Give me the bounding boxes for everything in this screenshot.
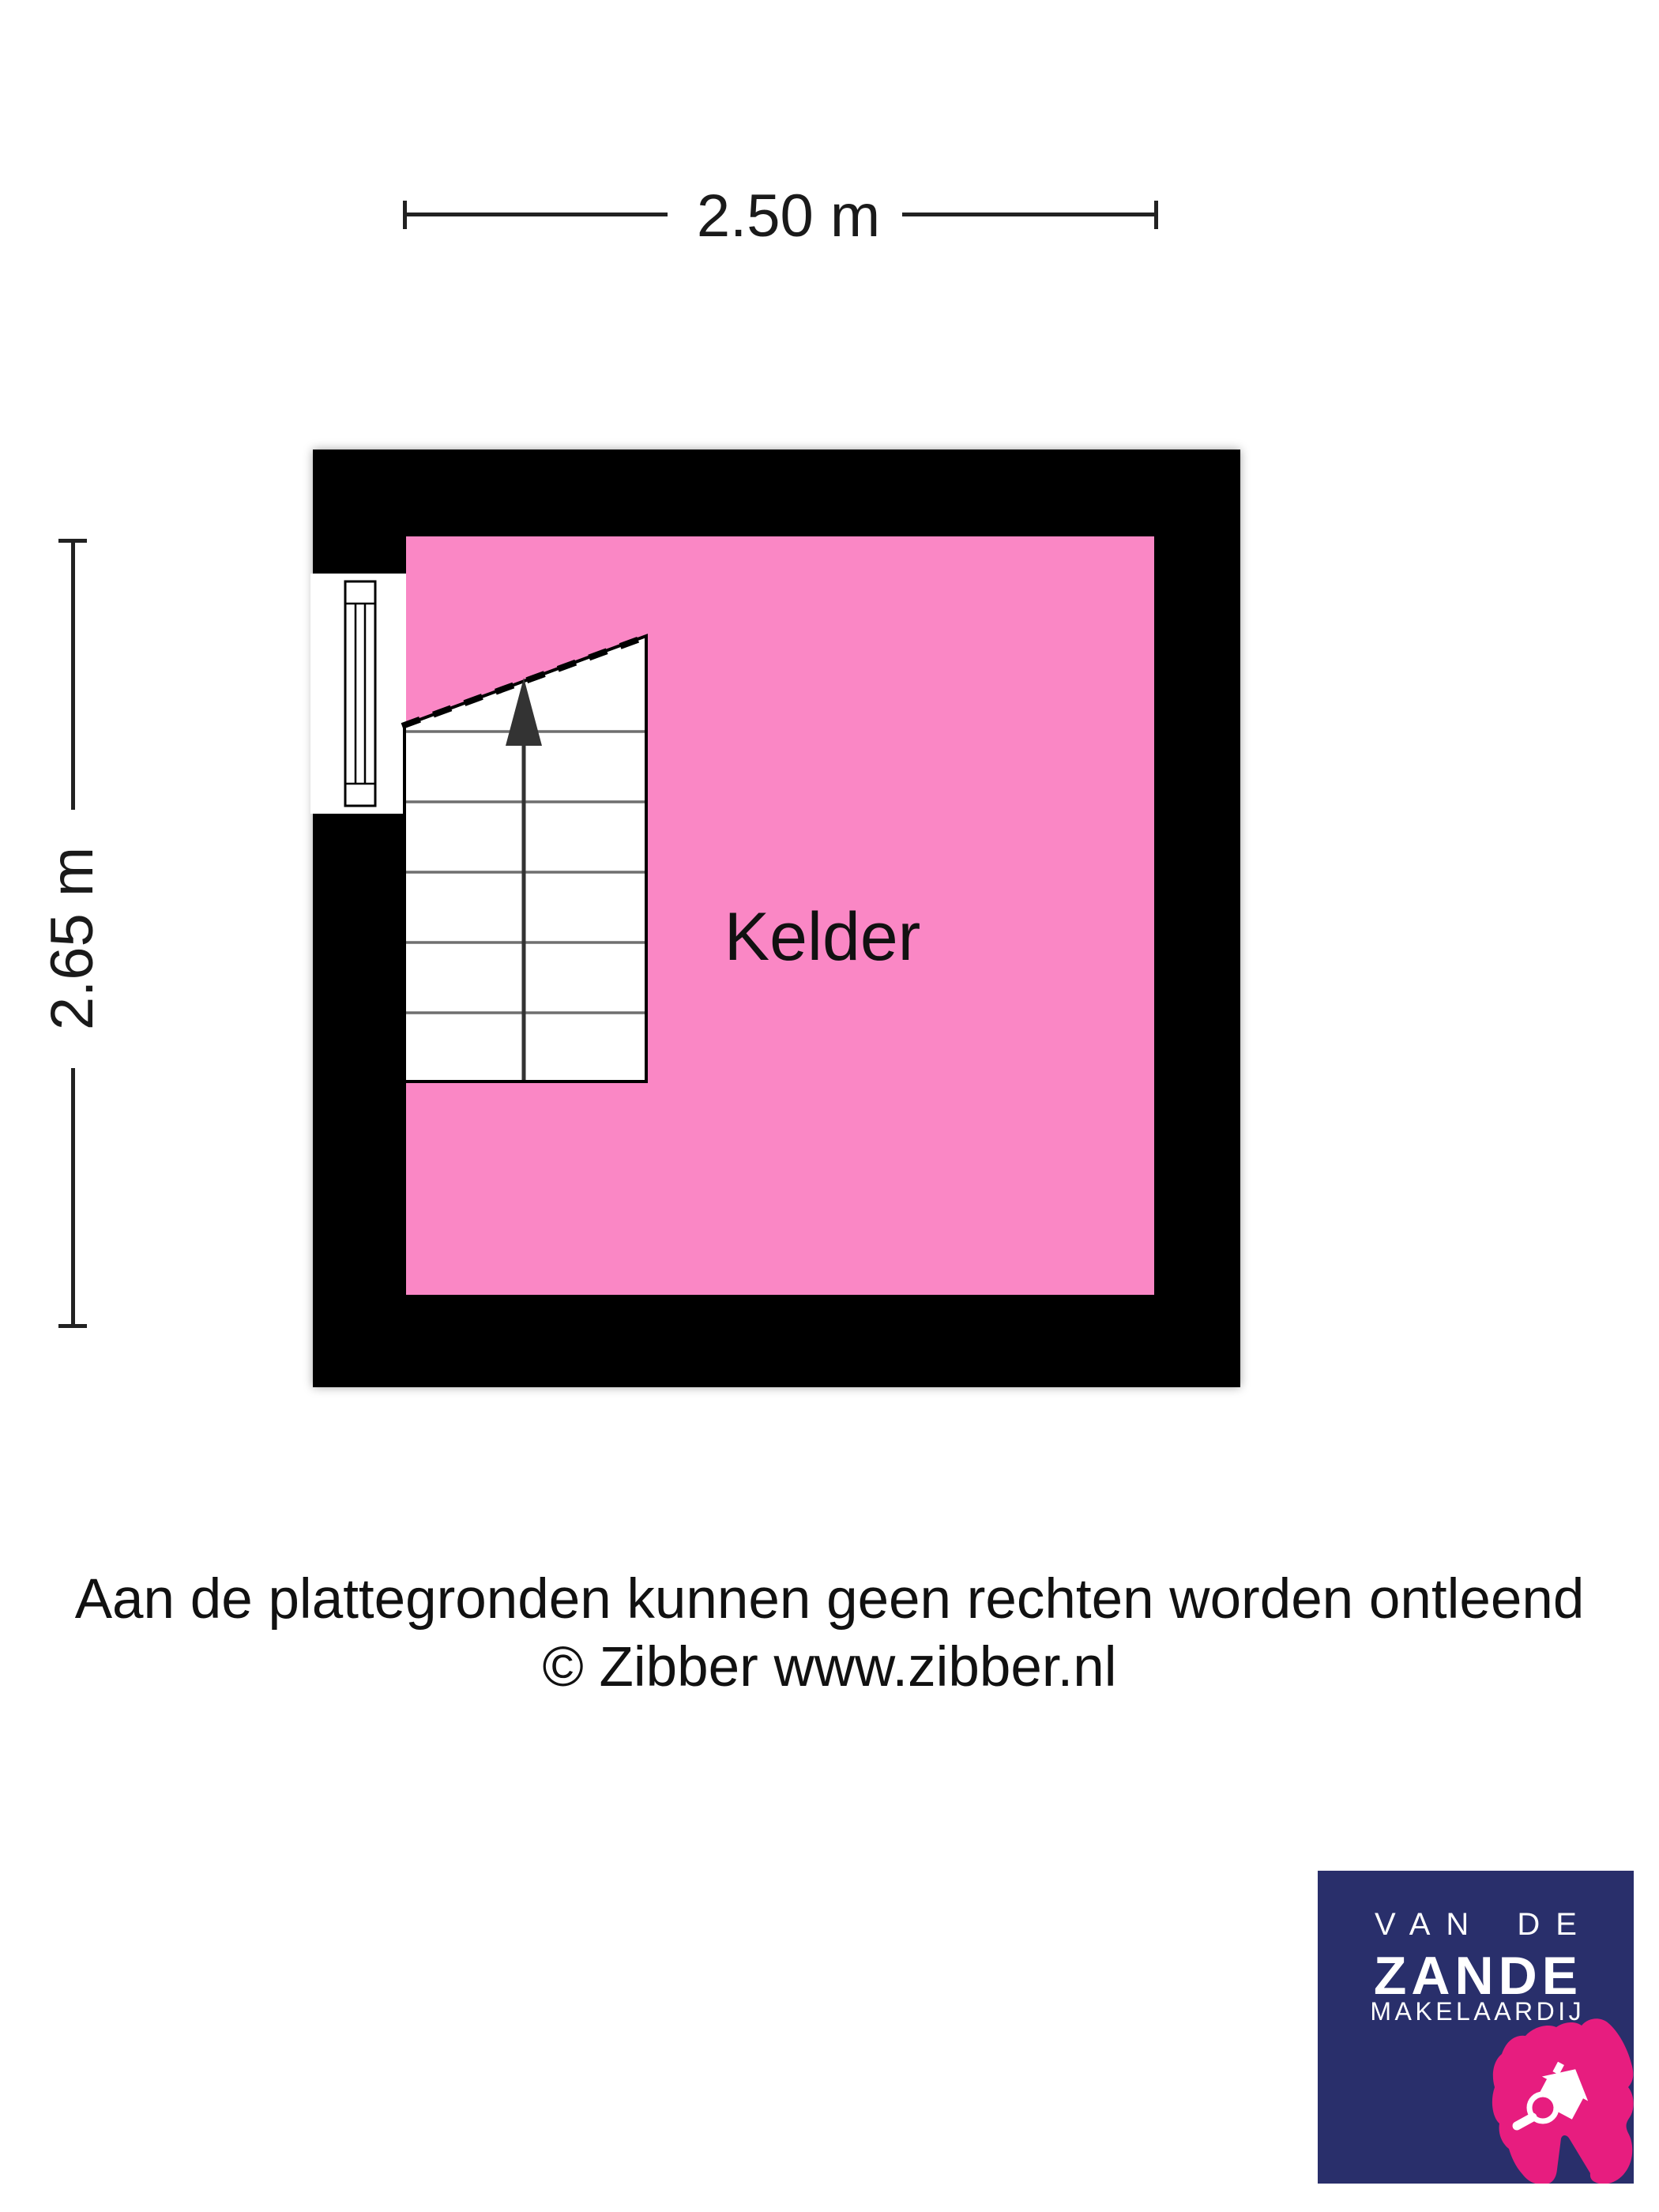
top-dimension-label: 2.50 m <box>662 185 915 248</box>
left-dimension-label: 2.65 m <box>41 812 104 1065</box>
dim-tick-bottom <box>58 1324 87 1328</box>
window-icon <box>310 574 406 814</box>
dim-line-segment <box>71 540 75 810</box>
dim-line-segment <box>71 1068 75 1326</box>
floor-plan-drawing: Kelder <box>300 427 1288 1454</box>
disclaimer-line2: © Zibber www.zibber.nl <box>0 1634 1659 1702</box>
logo-text-van-de: VAN DE <box>1318 1907 1634 1943</box>
floorplan-page: 2.50 m 2.65 m <box>0 0 1659 2212</box>
dim-tick-right <box>1154 201 1158 229</box>
window-frame <box>345 581 375 806</box>
dim-line-segment <box>404 213 668 216</box>
logo-text-makelaardij: MAKELAARDIJ <box>1318 1997 1634 2026</box>
van-de-zande-logo: VAN DE ZANDE MAKELAARDIJ <box>1318 1871 1634 2184</box>
room-label: Kelder <box>724 899 921 975</box>
dim-line-segment <box>902 213 1157 216</box>
disclaimer-line1: Aan de plattegronden kunnen geen rechten… <box>0 1566 1659 1634</box>
disclaimer: Aan de plattegronden kunnen geen rechten… <box>0 1566 1659 1702</box>
